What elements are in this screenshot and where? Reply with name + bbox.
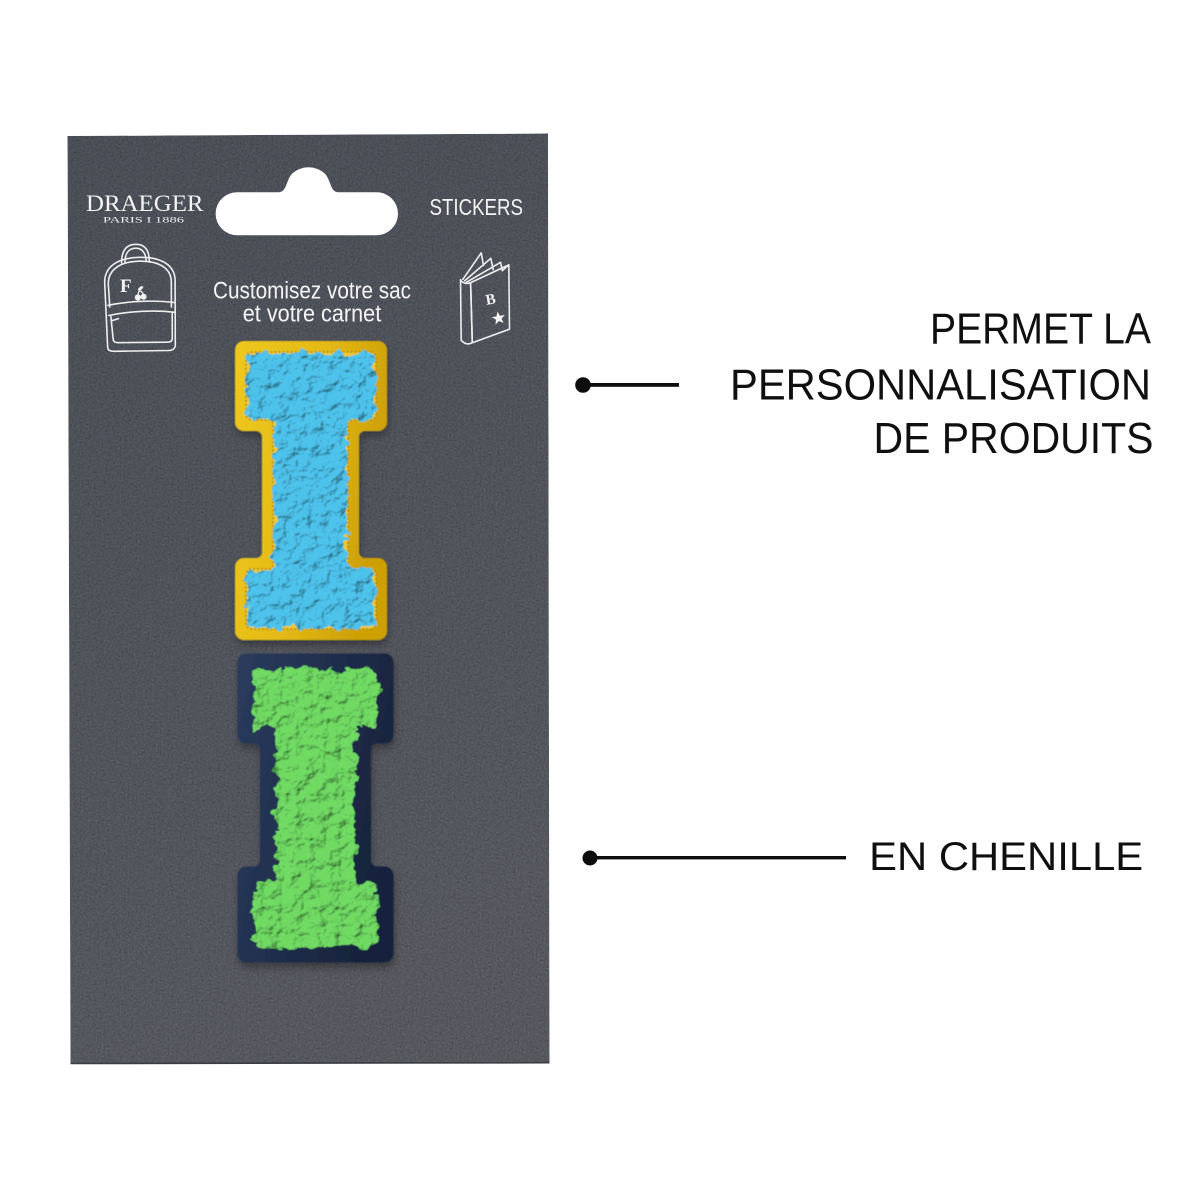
svg-text:PERSONNALISATION: PERSONNALISATION: [730, 361, 1151, 410]
svg-text:EN CHENILLE: EN CHENILLE: [869, 835, 1143, 879]
svg-text:DE PRODUITS: DE PRODUITS: [874, 414, 1154, 463]
svg-text:et votre carnet: et votre carnet: [243, 301, 382, 328]
svg-text:STICKERS: STICKERS: [430, 194, 524, 220]
svg-text:DRAEGER: DRAEGER: [86, 191, 204, 216]
svg-text:F: F: [120, 276, 132, 297]
svg-text:PERMET LA: PERMET LA: [930, 305, 1152, 354]
svg-text:PARIS I 1886: PARIS I 1886: [103, 215, 184, 225]
